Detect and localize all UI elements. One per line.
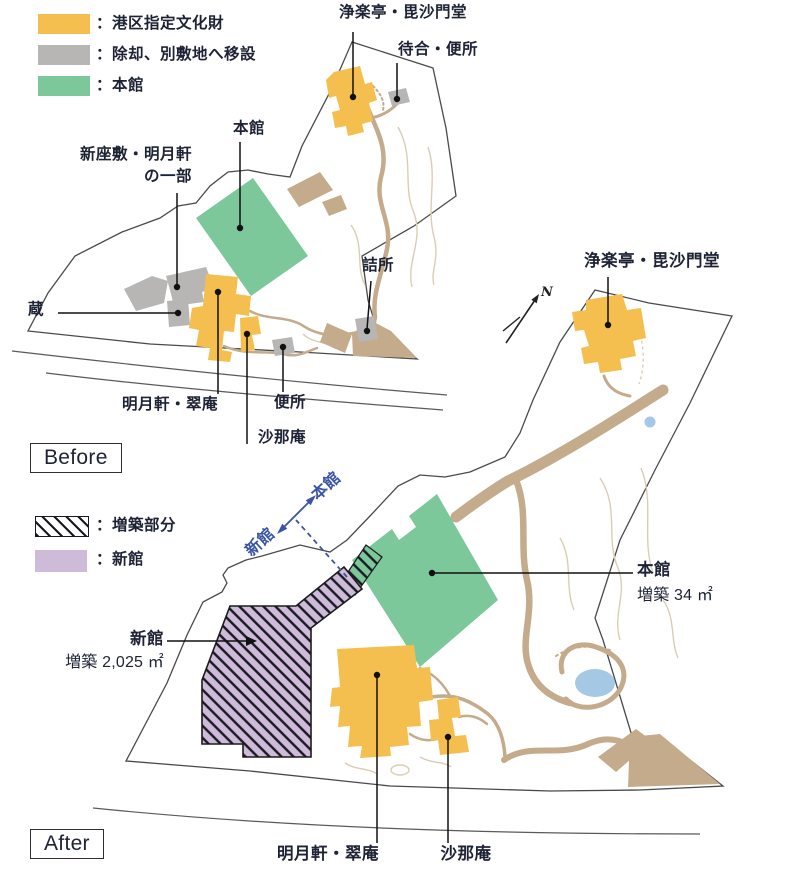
after-road-line bbox=[93, 808, 700, 834]
legend-label-removed: ：除却、別敷地へ移設 bbox=[96, 46, 256, 64]
after-label-joraku: 浄楽亭・毘沙門堂 bbox=[584, 252, 720, 271]
before-label-benjo: 便所 bbox=[274, 394, 306, 412]
before-label-joraku: 浄楽亭・毘沙門堂 bbox=[339, 4, 467, 22]
after-pond-large bbox=[575, 669, 615, 697]
after-pond-small bbox=[645, 417, 656, 428]
before-label-machiai: 待合・便所 bbox=[398, 41, 478, 59]
after-tag: After bbox=[30, 829, 104, 859]
after-label-meigetsuken: 明月軒・翠庵 bbox=[277, 845, 379, 864]
after-label-honkan: 本館 bbox=[637, 561, 671, 580]
before-tag: Before bbox=[30, 443, 122, 473]
before-label-tsumesho: 詰所 bbox=[362, 257, 394, 275]
after-map bbox=[93, 277, 732, 843]
legend-swatch-shinkan bbox=[35, 550, 87, 572]
legend-swatch-extension-hatch bbox=[35, 516, 89, 537]
before-label-kura: 蔵 bbox=[28, 301, 44, 319]
north-arrow-icon bbox=[503, 294, 539, 343]
before-label-shinzashiki-line2: の一部 bbox=[46, 168, 192, 186]
after-label-shinkan: 新館 bbox=[40, 630, 164, 649]
north-label: N bbox=[541, 286, 553, 301]
legend-swatch-removed bbox=[38, 45, 90, 65]
after-label-shinkan-note: 増築 2,025 ㎡ bbox=[28, 654, 164, 672]
before-label-shinzashiki-line1: 新座敷・明月軒 bbox=[46, 146, 192, 164]
after-label-shanaan: 沙那庵 bbox=[441, 845, 492, 864]
before-label-shanaan: 沙那庵 bbox=[258, 429, 306, 447]
legend-label-extension: ：増築部分 bbox=[96, 517, 176, 535]
before-label-meigetsuken: 明月軒・翠庵 bbox=[122, 396, 218, 414]
legend-label-shinkan: ：新館 bbox=[96, 551, 144, 569]
before-road-line-2 bbox=[46, 373, 443, 410]
legend-swatch-honkan bbox=[38, 76, 90, 96]
site-maps-svg bbox=[0, 0, 800, 873]
legend-label-cultural: ：港区指定文化財 bbox=[96, 15, 224, 33]
figure-before-after-site-plan: ：港区指定文化財 ：除却、別敷地へ移設 ：本館 ：増築部分 ：新館 浄楽亭・毘沙… bbox=[0, 0, 800, 873]
after-label-honkan-note: 増築 34 ㎡ bbox=[637, 587, 713, 605]
legend-swatch-cultural bbox=[38, 14, 90, 34]
legend-label-honkan: ：本館 bbox=[96, 77, 144, 95]
before-label-honkan: 本館 bbox=[233, 120, 265, 138]
